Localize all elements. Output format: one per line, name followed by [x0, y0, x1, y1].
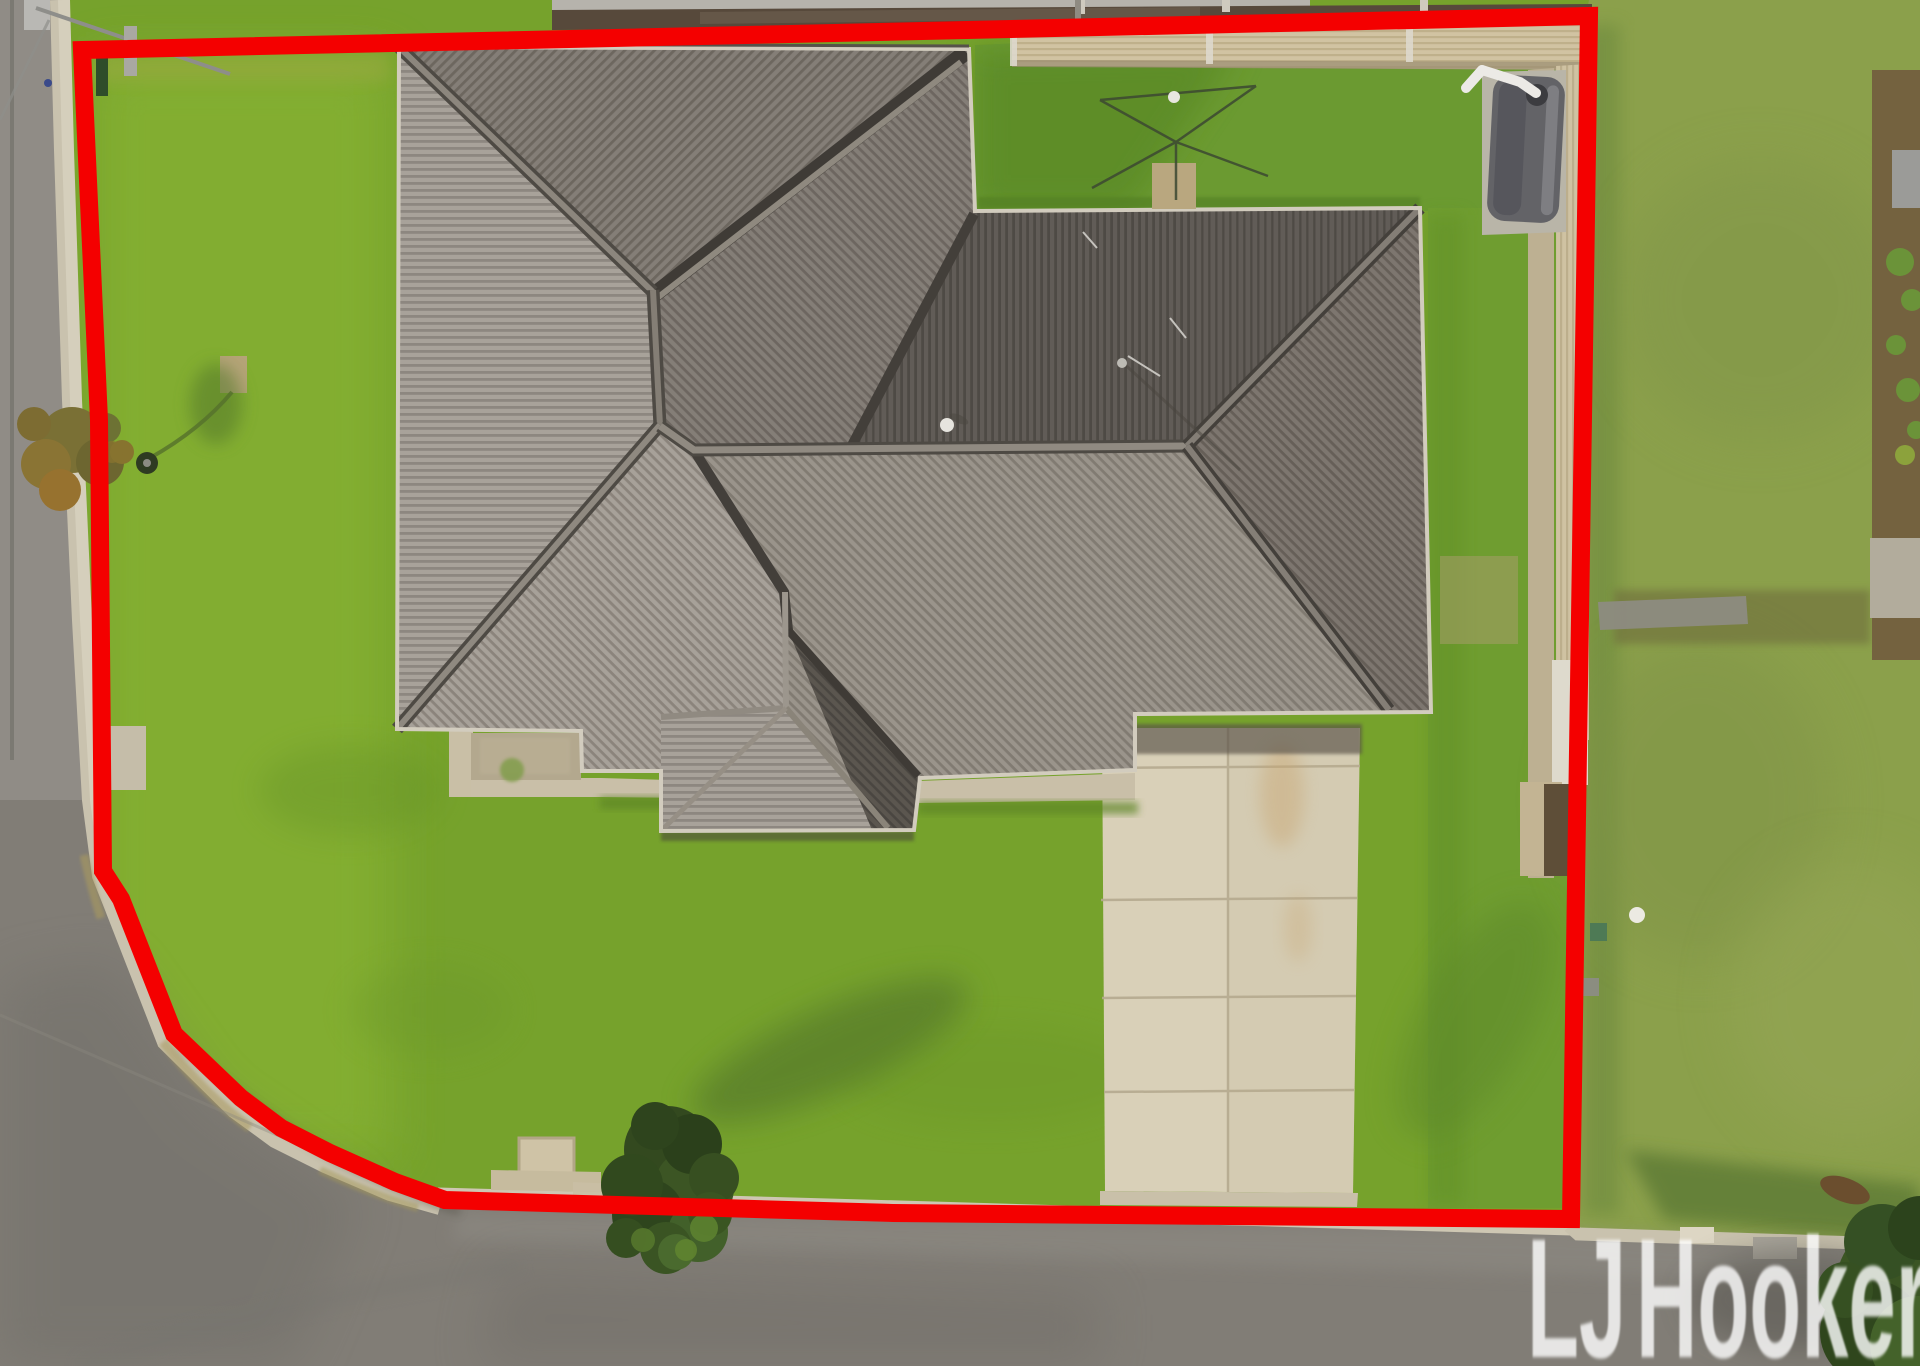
svg-text:Hooker: Hooker [1636, 1204, 1920, 1366]
svg-text:LJ: LJ [1527, 1204, 1626, 1366]
